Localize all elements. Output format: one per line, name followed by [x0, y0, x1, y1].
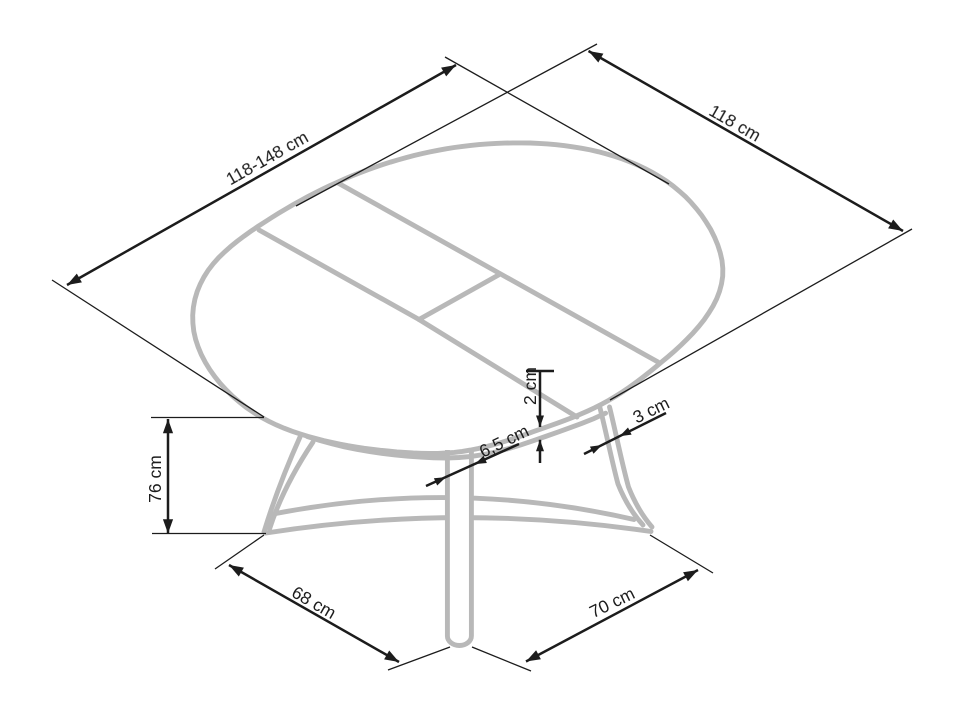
svg-text:76 cm: 76 cm — [145, 455, 165, 503]
svg-text:2 cm: 2 cm — [520, 367, 540, 405]
